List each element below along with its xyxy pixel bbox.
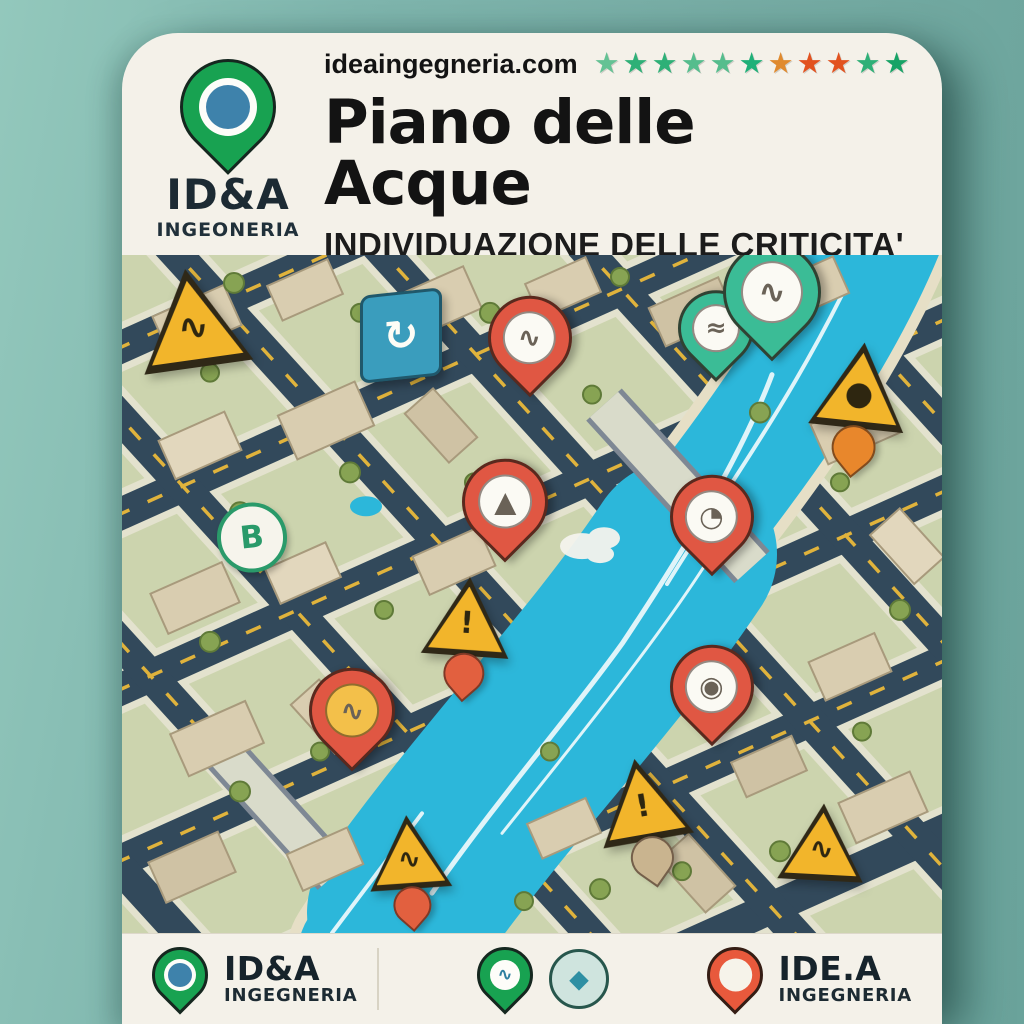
curve-warning-sign: ∿ <box>777 801 867 883</box>
warning-triangle-icon: ∿ <box>365 813 452 892</box>
pin-badge: ∿ <box>324 684 378 738</box>
map-pin-icon <box>140 935 219 1014</box>
flood-warning-sign: ● <box>804 337 913 473</box>
monitoring-pin-green-2: ∿ <box>723 255 821 341</box>
footer-left-text: ID&A INGEGNERIA <box>224 952 357 1006</box>
star-icon: ★ <box>826 50 852 79</box>
footer: ID&A INGEGNERIA ∿ ◆ IDE.A INGEGNERIA <box>122 933 942 1024</box>
river-warning-sign-1: ! <box>418 574 514 696</box>
star-icon: ★ <box>855 50 881 79</box>
criticality-pin-amber: ∿ <box>309 668 395 754</box>
star-icon: ★ <box>681 50 707 79</box>
pin-glyph: ∿ <box>490 960 520 990</box>
warning-triangle-icon: ! <box>421 574 514 659</box>
pin-core <box>168 963 192 987</box>
pin-head: ◉ <box>653 627 772 746</box>
pin-ring <box>164 959 196 991</box>
criticality-pin-red-3-icon: ◔ <box>700 503 725 531</box>
pin-badge: ◉ <box>686 660 739 713</box>
pin-badge: ◔ <box>686 491 739 544</box>
page-title: Piano delle Acque <box>324 92 916 214</box>
criticality-pin-amber-icon: ∿ <box>340 697 364 726</box>
curve-warning-sign-icon: ∿ <box>778 832 865 866</box>
footer-left-subtitle: INGEGNERIA <box>224 987 357 1006</box>
star-rating: ★★★★★★★★★★★ <box>594 50 910 79</box>
round-badge-icon: B <box>214 499 291 576</box>
warning-triangle-icon: ∿ <box>130 262 253 375</box>
domain-row: ideaingegneria.com ★★★★★★★★★★★ <box>324 49 916 80</box>
star-icon: ★ <box>710 50 736 79</box>
website-url: ideaingegneria.com <box>324 49 578 80</box>
pin-hole <box>718 959 751 992</box>
footer-right-text: IDE.A INGEGNERIA <box>779 952 912 1006</box>
map-pin-icon <box>160 39 296 175</box>
map-markers-layer: ∿ ↻ ∿ ≈ ∿ ● <box>122 255 942 933</box>
warning-triangle-icon: ∿ <box>777 801 867 883</box>
footer-icons: ∿ ◆ <box>477 949 609 1009</box>
star-icon: ★ <box>739 50 765 79</box>
logo-subtitle: INGEONERIA <box>142 219 314 241</box>
info-badge-green-icon: B <box>239 521 266 554</box>
criticality-pin-red-1: ∿ <box>488 296 572 380</box>
criticality-pin-red-2-icon: ▲ <box>494 487 516 516</box>
river-warning-sign-1-icon: ! <box>422 605 512 641</box>
pin-head: ▲ <box>444 441 566 563</box>
criticality-pin-red-4-icon: ◉ <box>700 673 725 701</box>
pin-badge: ∿ <box>741 261 803 323</box>
criticality-pin-red-1-icon: ∿ <box>519 324 543 352</box>
logo-name: ID&A <box>142 173 314 217</box>
warning-triangle-icon: ● <box>808 337 913 433</box>
map-pin-green-icon: ∿ <box>465 935 544 1014</box>
company-logo: ID&A INGEONERIA <box>142 55 314 241</box>
footer-logo-right: IDE.A INGEGNERIA <box>707 952 912 1006</box>
star-icon: ★ <box>623 50 649 79</box>
pin-ring <box>199 78 257 136</box>
footer-right-name: IDE.A <box>779 952 912 987</box>
star-icon: ★ <box>594 50 620 79</box>
criticality-pin-red-3: ◔ <box>670 475 754 559</box>
blue-sign-icon: ↻ <box>360 287 442 384</box>
criticality-pin-red-4: ◉ <box>670 645 754 729</box>
pin-badge: ▲ <box>478 474 532 528</box>
location-pin-red-icon <box>695 935 774 1014</box>
roadworks-warning-sign: ∿ <box>130 262 253 375</box>
pin-core <box>206 85 250 129</box>
pin-head: ∿ <box>471 278 590 397</box>
footer-left-name: ID&A <box>224 952 357 987</box>
star-icon: ★ <box>797 50 823 79</box>
water-feature-icon: ◆ <box>549 949 609 1009</box>
monitoring-pin-green-2-icon: ∿ <box>758 276 786 309</box>
poster-card: ID&A INGEONERIA ideaingegneria.com ★★★★★… <box>122 33 942 1024</box>
star-icon: ★ <box>884 50 910 79</box>
footer-right-subtitle: INGEGNERIA <box>779 987 912 1006</box>
water-cycle-sign-icon: ↻ <box>383 313 418 358</box>
city-map-illustration: ∿ ↻ ∿ ≈ ∿ ● <box>122 255 942 933</box>
footer-divider <box>377 948 379 1010</box>
water-cycle-sign: ↻ <box>360 291 442 379</box>
criticality-pin-red-2: ▲ <box>462 459 548 545</box>
pin-head: ∿ <box>291 650 413 772</box>
pin-head: ◔ <box>653 458 772 577</box>
warning-triangle-icon: ! <box>589 751 694 849</box>
logo-pin-wrap <box>142 55 314 173</box>
info-badge-green: B <box>214 499 291 576</box>
footer-logo-left: ID&A INGEGNERIA <box>152 952 357 1006</box>
header: ID&A INGEONERIA ideaingegneria.com ★★★★★… <box>122 33 942 255</box>
header-right: ideaingegneria.com ★★★★★★★★★★★ Piano del… <box>324 49 916 285</box>
pin-badge: ∿ <box>504 311 557 364</box>
star-icon: ★ <box>652 50 678 79</box>
star-icon: ★ <box>768 50 794 79</box>
exclamation-warning-sign: ! <box>589 751 701 887</box>
river-warning-sign-2: ∿ <box>365 813 454 927</box>
